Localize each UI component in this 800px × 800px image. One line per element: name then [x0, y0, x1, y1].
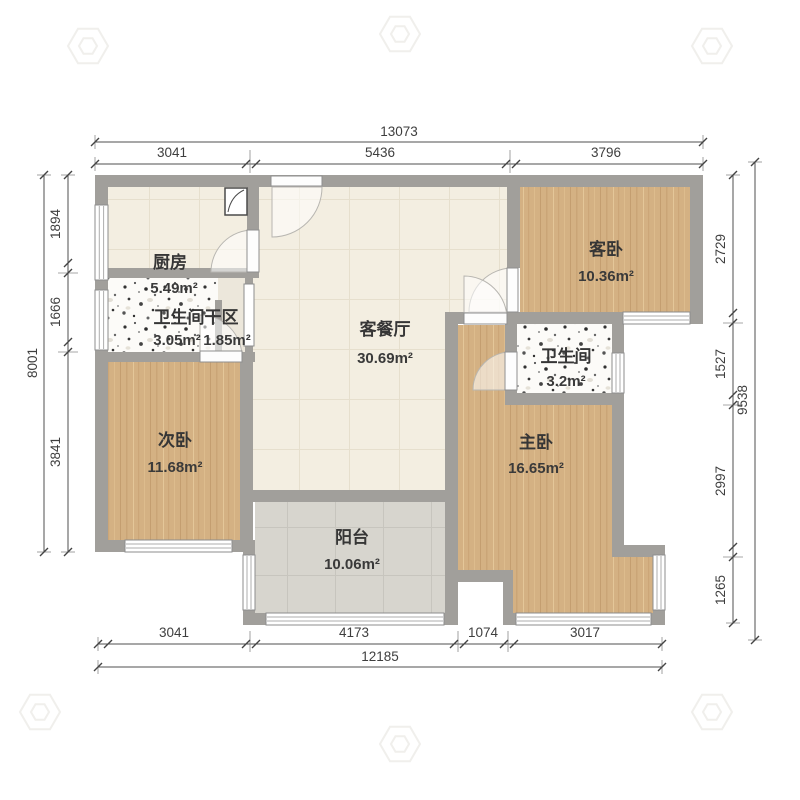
master-bedroom-label: 主卧 — [519, 432, 553, 452]
watermark-icon — [692, 29, 732, 64]
dimension-bottom-total: 12185 — [94, 649, 666, 674]
door-leaf — [507, 268, 518, 312]
watermark-icon — [380, 17, 420, 52]
dim-label: 1666 — [48, 297, 63, 327]
balcony-bottom-window — [266, 613, 444, 625]
door-leaf — [505, 352, 517, 390]
dry-area-area-b: 1.85m² — [203, 332, 251, 349]
dry-area-label: 卫生间干区 — [154, 307, 239, 327]
guest-bedroom-label: 客卧 — [588, 239, 623, 259]
dim-label: 1894 — [48, 208, 63, 239]
dim-label: 12185 — [361, 649, 399, 664]
dim-label: 3796 — [591, 145, 621, 160]
guest-bedroom-area: 10.36m² — [578, 268, 634, 285]
second-bedroom-area: 11.68m² — [147, 459, 202, 476]
balcony-label: 阳台 — [335, 527, 369, 547]
floor-plan: 厨房 5.49m² 卫生间干区 3.05m² 1.85m² 客餐厅 30.69m… — [0, 0, 800, 800]
floor-plan-canvas: 厨房 5.49m² 卫生间干区 3.05m² 1.85m² 客餐厅 30.69m… — [0, 0, 800, 800]
dim-label: 2997 — [713, 466, 728, 496]
flue-icon — [225, 188, 247, 215]
dim-label: 4173 — [339, 625, 369, 640]
dim-label: 3041 — [157, 145, 187, 160]
dim-label: 3041 — [159, 625, 189, 640]
dim-label: 1527 — [713, 349, 728, 379]
dim-label: 3017 — [570, 625, 600, 640]
master-extension-bottom-window — [516, 613, 651, 625]
dimension-top-segments: 3041 5436 3796 — [91, 145, 707, 173]
dim-label: 8001 — [25, 348, 40, 378]
balcony-area: 10.06m² — [324, 556, 380, 573]
dimension-left-segments: 1894 1666 3841 — [48, 171, 78, 556]
dim-label: 3841 — [48, 437, 63, 467]
second-bedroom-window — [125, 540, 232, 552]
kitchen-window — [95, 205, 108, 280]
dimension-bottom-segments: 3041 4173 1074 3017 — [94, 625, 666, 652]
bathroom-area: 3.2m² — [546, 373, 585, 390]
dim-label: 1074 — [468, 625, 499, 640]
watermark-icon — [68, 29, 108, 64]
bathroom-window — [612, 353, 624, 393]
dim-label: 5436 — [365, 145, 395, 160]
watermark-icon — [20, 695, 60, 730]
dim-label: 13073 — [380, 124, 418, 139]
dim-label: 9538 — [735, 385, 750, 415]
dry-area-area-a: 3.05m² — [153, 332, 201, 349]
living-room-area: 30.69m² — [357, 350, 413, 367]
guest-bedroom-window — [623, 312, 690, 324]
dim-label: 2729 — [713, 234, 728, 264]
dimension-right-total: 9538 — [735, 158, 762, 644]
watermark-icon — [692, 695, 732, 730]
dry-area-window — [95, 290, 108, 350]
kitchen-area: 5.49m² — [150, 280, 198, 297]
door-leaf — [200, 351, 242, 362]
living-room-label: 客餐厅 — [359, 319, 411, 339]
kitchen-label: 厨房 — [153, 252, 187, 272]
balcony-left-window — [243, 555, 255, 610]
master-bedroom-area: 16.65m² — [508, 460, 564, 477]
door-leaf — [271, 176, 322, 186]
bathroom-label: 卫生间 — [541, 346, 592, 366]
second-bedroom-floor — [108, 362, 240, 540]
dim-label: 1265 — [713, 575, 728, 605]
door-leaf — [247, 230, 259, 272]
door-leaf — [464, 313, 507, 324]
watermark-icon — [380, 727, 420, 762]
master-extension-right-window — [653, 555, 665, 610]
second-bedroom-label: 次卧 — [158, 430, 192, 450]
